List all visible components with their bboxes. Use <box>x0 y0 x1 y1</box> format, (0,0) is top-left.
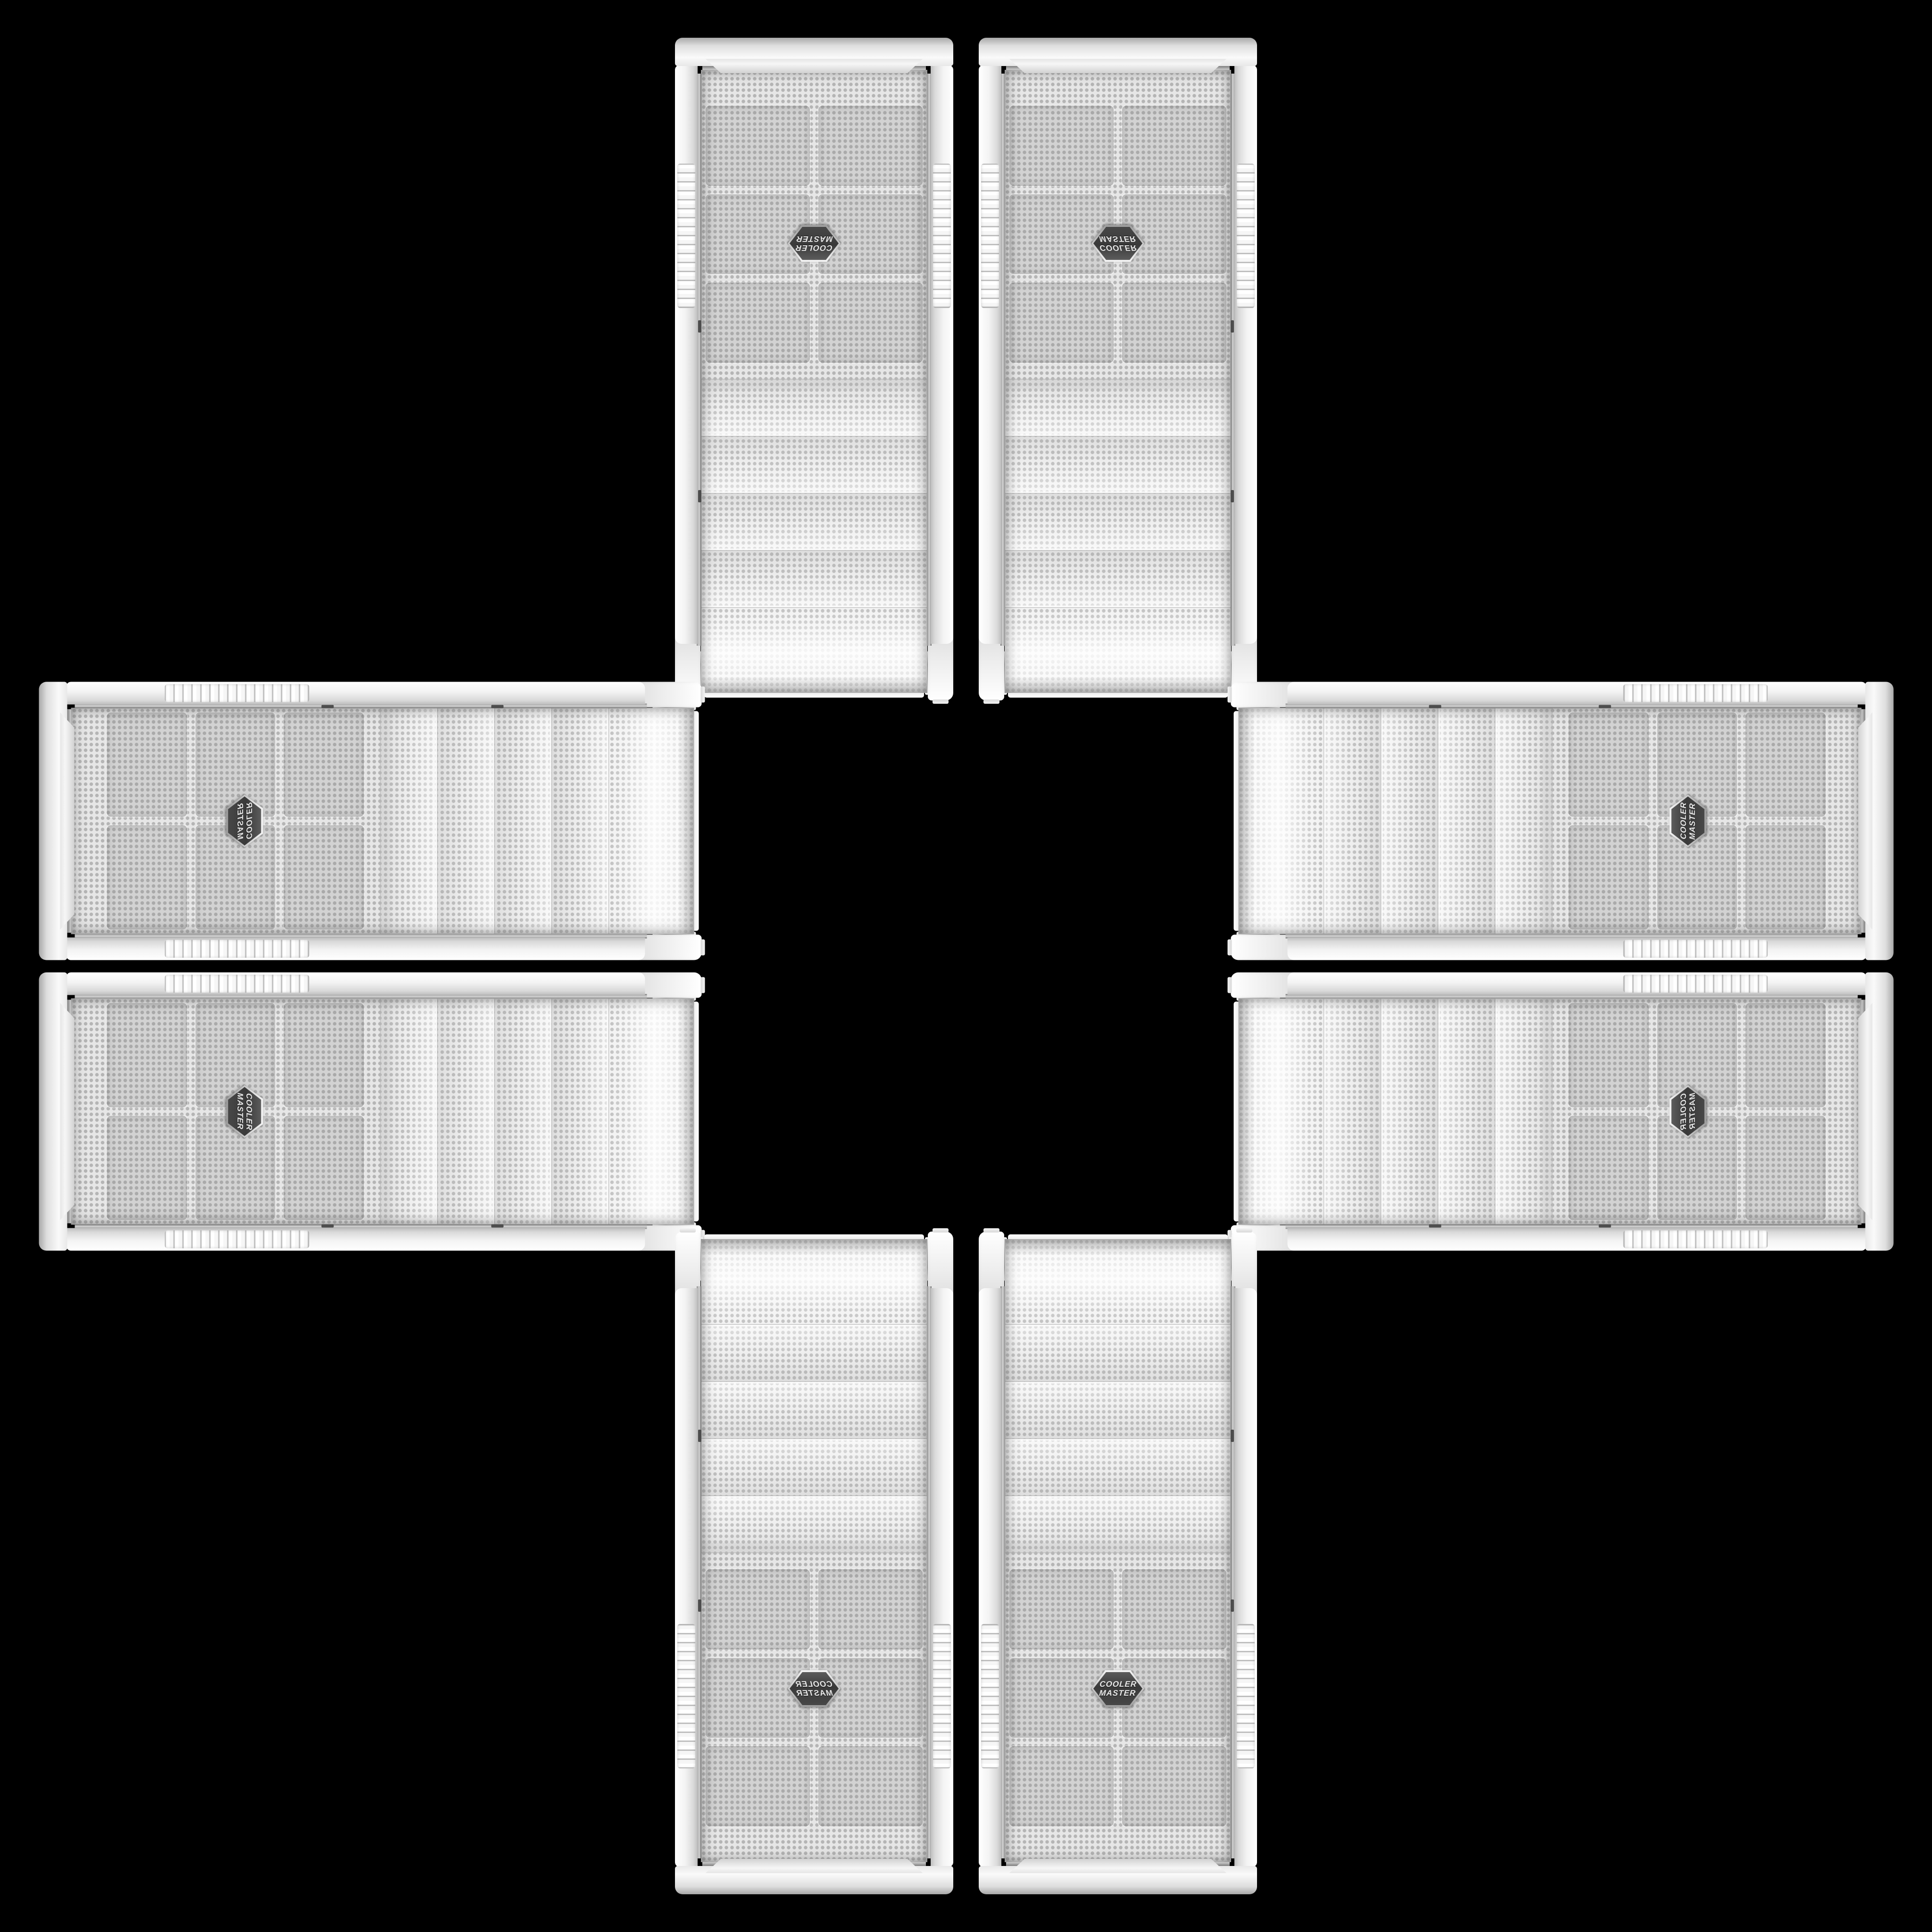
rail-ribs-left <box>933 1624 951 1769</box>
vent-grid-cell <box>283 1003 364 1107</box>
drive-bay-cover <box>380 998 437 1224</box>
pc-case-right-bottom: COOLER MASTER <box>1231 972 1893 1250</box>
vent-grid-cell <box>706 106 810 186</box>
side-rail-right <box>1287 682 1866 704</box>
drive-bay-cover <box>1495 708 1552 934</box>
drive-bay-cover <box>551 708 608 934</box>
latch-notch <box>491 1224 503 1227</box>
vent-grid-cell <box>1745 712 1825 816</box>
mesh-panel: COOLER MASTER <box>1238 998 1861 1224</box>
mesh-panel: COOLER MASTER <box>71 998 694 1224</box>
rail-ribs-right <box>165 684 309 702</box>
vent-grid-cell <box>107 712 187 816</box>
drive-bay-cover-curved <box>608 998 694 1224</box>
cooler-master-badge: COOLER MASTER <box>790 227 839 260</box>
drive-bay-cover <box>1438 708 1495 934</box>
latch-notch <box>321 1224 333 1227</box>
drive-bay-covers <box>1005 1239 1231 1553</box>
mesh-panel: COOLER MASTER <box>71 708 694 934</box>
vent-grid-cell <box>283 712 364 816</box>
badge-line1: COOLER <box>1099 244 1137 252</box>
cooler-master-badge: COOLER MASTER <box>1093 1672 1142 1705</box>
drive-bay-cover <box>1324 998 1381 1224</box>
drive-bay-cover <box>1005 493 1231 550</box>
bottom-cap-facet <box>706 1859 923 1873</box>
vent-grid-cell <box>1745 1116 1825 1220</box>
drive-bay-cover <box>701 379 927 436</box>
side-rail-right <box>675 65 698 644</box>
case-bottom-cap <box>675 38 953 66</box>
rail-ribs-left <box>165 940 309 958</box>
pc-case-left-bottom: COOLER MASTER <box>39 972 701 1250</box>
badge-line2: MASTER <box>1688 1092 1696 1130</box>
drive-bay-cover <box>701 1325 927 1382</box>
badge-line2: MASTER <box>796 1689 833 1697</box>
badge-line2: MASTER <box>236 802 244 840</box>
side-rail-left <box>979 1288 1001 1867</box>
drive-bay-cover-curved <box>701 607 927 693</box>
badge-line1: COOLER <box>245 801 253 839</box>
badge-line1: COOLER <box>1679 801 1687 839</box>
vent-grid-cell <box>706 1569 810 1649</box>
vent-grid-cell <box>107 1003 187 1107</box>
drive-bay-covers <box>380 708 694 934</box>
drive-bay-cover-curved <box>1238 998 1324 1224</box>
case-bottom-cap <box>1865 682 1893 960</box>
vent-grid-cell <box>1122 106 1226 186</box>
case-front-panel: COOLER MASTER <box>1231 682 1893 960</box>
drive-bay-cover <box>1005 1496 1231 1553</box>
vent-grid-cell <box>283 1116 364 1220</box>
drive-bay-cover <box>701 550 927 607</box>
latch-notch <box>1231 1599 1234 1612</box>
case-bottom-cap <box>1865 972 1893 1250</box>
case-front-panel: COOLER MASTER <box>39 972 701 1250</box>
rail-ribs-right <box>677 164 695 308</box>
side-rail-right <box>1234 1288 1257 1867</box>
side-rail-left <box>1287 972 1866 995</box>
bottom-cap-facet <box>706 59 923 73</box>
case-bottom-cap <box>979 38 1257 66</box>
side-rail-left <box>979 65 1001 644</box>
side-rail-left <box>931 65 953 644</box>
cooler-master-badge: COOLER MASTER <box>790 1672 839 1705</box>
drive-bay-cover-curved <box>1005 607 1231 693</box>
vent-grid-cell <box>1745 1003 1825 1107</box>
drive-bay-cover-curved <box>608 708 694 934</box>
latch-notch <box>1231 1430 1234 1442</box>
drive-bay-cover <box>437 998 494 1224</box>
drive-bay-cover <box>701 1439 927 1496</box>
vent-grid-cell <box>1122 1569 1226 1649</box>
mesh-panel: COOLER MASTER <box>1238 708 1861 934</box>
vent-grid-cell <box>818 1746 923 1826</box>
latch-notch <box>321 705 333 708</box>
drive-bay-cover <box>701 436 927 493</box>
case-front-panel: COOLER MASTER <box>675 1232 953 1894</box>
pc-case-top-left: COOLER MASTER <box>675 38 953 700</box>
bottom-cap-facet <box>1858 1003 1872 1220</box>
badge-line1: COOLER <box>245 1093 253 1131</box>
case-front-panel: COOLER MASTER <box>979 38 1257 700</box>
case-bottom-cap <box>675 1866 953 1894</box>
vent-grid-cell <box>706 283 810 363</box>
rail-ribs-left <box>981 164 999 308</box>
side-rail-right <box>1234 65 1257 644</box>
badge-line1: COOLER <box>1099 1680 1137 1688</box>
rail-ribs-right <box>1623 1230 1768 1248</box>
badge-text: COOLER MASTER <box>1671 1086 1704 1137</box>
badge-text: COOLER MASTER <box>1092 1672 1144 1705</box>
badge-line2: MASTER <box>1099 235 1136 243</box>
case-front-panel: COOLER MASTER <box>979 1232 1257 1894</box>
drive-bay-covers <box>701 1239 927 1553</box>
case-collage-scene: COOLER MASTER <box>0 0 1932 1932</box>
drive-bay-cover <box>1495 998 1552 1224</box>
badge-line2: MASTER <box>1688 802 1696 840</box>
badge-text: COOLER MASTER <box>1671 795 1704 847</box>
badge-line2: MASTER <box>796 235 833 243</box>
badge-text: COOLER MASTER <box>228 1086 261 1137</box>
drive-bay-covers <box>380 998 694 1224</box>
vent-grid-cell <box>818 283 923 363</box>
vent-grid-cell <box>1009 1746 1114 1826</box>
drive-bay-cover <box>437 708 494 934</box>
latch-notch <box>698 320 701 333</box>
side-rail-right <box>1287 1228 1866 1250</box>
vent-grid-cell <box>1568 1116 1649 1220</box>
cooler-master-badge: COOLER MASTER <box>228 1087 261 1136</box>
badge-line2: MASTER <box>236 1092 244 1130</box>
mesh-panel: COOLER MASTER <box>701 70 927 693</box>
latch-notch <box>1429 705 1441 708</box>
latch-notch <box>1231 320 1234 333</box>
mesh-panel: COOLER MASTER <box>701 1239 927 1862</box>
rail-ribs-left <box>1623 974 1768 992</box>
mesh-panel: COOLER MASTER <box>1005 1239 1231 1862</box>
latch-notch <box>698 1430 701 1442</box>
rail-ribs-right <box>165 1230 309 1248</box>
side-rail-left <box>66 937 645 960</box>
cooler-master-badge: COOLER MASTER <box>228 796 261 845</box>
rail-ribs-right <box>1237 164 1255 308</box>
drive-bay-cover <box>494 708 551 934</box>
drive-bay-cover <box>1438 998 1495 1224</box>
drive-bay-cover-curved <box>701 1239 927 1325</box>
side-rail-left <box>66 972 645 995</box>
vent-grid-cell <box>1568 712 1649 816</box>
badge-line2: MASTER <box>1099 1689 1136 1697</box>
vent-grid-cell <box>1745 825 1825 929</box>
side-rail-right <box>66 1228 645 1250</box>
case-bottom-cap <box>39 972 67 1250</box>
cooler-master-badge: COOLER MASTER <box>1093 227 1142 260</box>
badge-text: COOLER MASTER <box>1092 227 1144 260</box>
side-rail-left <box>1287 937 1866 960</box>
bottom-cap-facet <box>1009 1859 1226 1873</box>
latch-notch <box>1599 705 1611 708</box>
bottom-cap-facet <box>60 712 74 929</box>
case-bottom-cap <box>979 1866 1257 1894</box>
vent-grid-cell <box>1009 106 1114 186</box>
case-front-panel: COOLER MASTER <box>675 38 953 700</box>
cooler-master-badge: COOLER MASTER <box>1671 1087 1704 1136</box>
pc-case-right-top: COOLER MASTER <box>1231 682 1893 960</box>
drive-bay-cover <box>701 493 927 550</box>
latch-notch <box>491 705 503 708</box>
latch-notch <box>698 490 701 502</box>
vent-grid-cell <box>1122 1746 1226 1826</box>
drive-bay-cover <box>701 1382 927 1439</box>
drive-bay-cover <box>1005 550 1231 607</box>
latch-notch <box>1429 1224 1441 1227</box>
pc-case-bottom-right: COOLER MASTER <box>979 1232 1257 1894</box>
vent-grid-cell <box>818 1569 923 1649</box>
latch-notch <box>1599 1224 1611 1227</box>
vent-grid-cell <box>1009 283 1114 363</box>
case-front-panel: COOLER MASTER <box>1231 972 1893 1250</box>
side-rail-right <box>675 1288 698 1867</box>
vent-grid-cell <box>1122 283 1226 363</box>
drive-bay-cover <box>1005 1382 1231 1439</box>
drive-bay-cover <box>1005 436 1231 493</box>
pc-case-bottom-left: COOLER MASTER <box>675 1232 953 1894</box>
drive-bay-cover <box>1324 708 1381 934</box>
mesh-panel: COOLER MASTER <box>1005 70 1231 693</box>
drive-bay-cover-curved <box>1238 708 1324 934</box>
drive-bay-cover <box>551 998 608 1224</box>
drive-bay-covers <box>1238 998 1552 1224</box>
rail-ribs-right <box>1237 1624 1255 1769</box>
badge-line1: COOLER <box>795 244 833 252</box>
rail-ribs-left <box>933 164 951 308</box>
drive-bay-covers <box>1005 379 1231 693</box>
case-bottom-cap <box>39 682 67 960</box>
pc-case-left-top: COOLER MASTER <box>39 682 701 960</box>
bottom-cap-facet <box>1009 59 1226 73</box>
case-front-panel: COOLER MASTER <box>39 682 701 960</box>
drive-bay-covers <box>701 379 927 693</box>
vent-grid-cell <box>1009 1569 1114 1649</box>
drive-bay-cover <box>1381 998 1438 1224</box>
badge-line1: COOLER <box>1679 1093 1687 1131</box>
drive-bay-cover <box>1005 1439 1231 1496</box>
rail-ribs-left <box>981 1624 999 1769</box>
badge-text: COOLER MASTER <box>789 227 840 260</box>
latch-notch <box>698 1599 701 1612</box>
vent-grid-cell <box>1568 1003 1649 1107</box>
vent-grid-cell <box>107 825 187 929</box>
drive-bay-cover <box>1005 379 1231 436</box>
rail-ribs-right <box>677 1624 695 1769</box>
drive-bay-cover-curved <box>1005 1239 1231 1325</box>
rail-ribs-left <box>1623 940 1768 958</box>
rail-ribs-left <box>165 974 309 992</box>
drive-bay-cover <box>494 998 551 1224</box>
drive-bay-cover <box>1005 1325 1231 1382</box>
bottom-cap-facet <box>60 1003 74 1220</box>
drive-bay-covers <box>1238 708 1552 934</box>
cooler-master-badge: COOLER MASTER <box>1671 796 1704 845</box>
drive-bay-cover <box>701 1496 927 1553</box>
latch-notch <box>1231 490 1234 502</box>
drive-bay-cover <box>380 708 437 934</box>
vent-grid-cell <box>706 1746 810 1826</box>
vent-grid-cell <box>283 825 364 929</box>
vent-grid-cell <box>107 1116 187 1220</box>
drive-bay-cover <box>1381 708 1438 934</box>
side-rail-left <box>931 1288 953 1867</box>
badge-text: COOLER MASTER <box>789 1672 840 1705</box>
rail-ribs-right <box>1623 684 1768 702</box>
side-rail-right <box>66 682 645 704</box>
bottom-cap-facet <box>1858 712 1872 929</box>
vent-grid-cell <box>818 106 923 186</box>
badge-text: COOLER MASTER <box>228 795 261 847</box>
vent-grid-cell <box>1568 825 1649 929</box>
badge-line1: COOLER <box>795 1680 833 1688</box>
pc-case-top-right: COOLER MASTER <box>979 38 1257 700</box>
